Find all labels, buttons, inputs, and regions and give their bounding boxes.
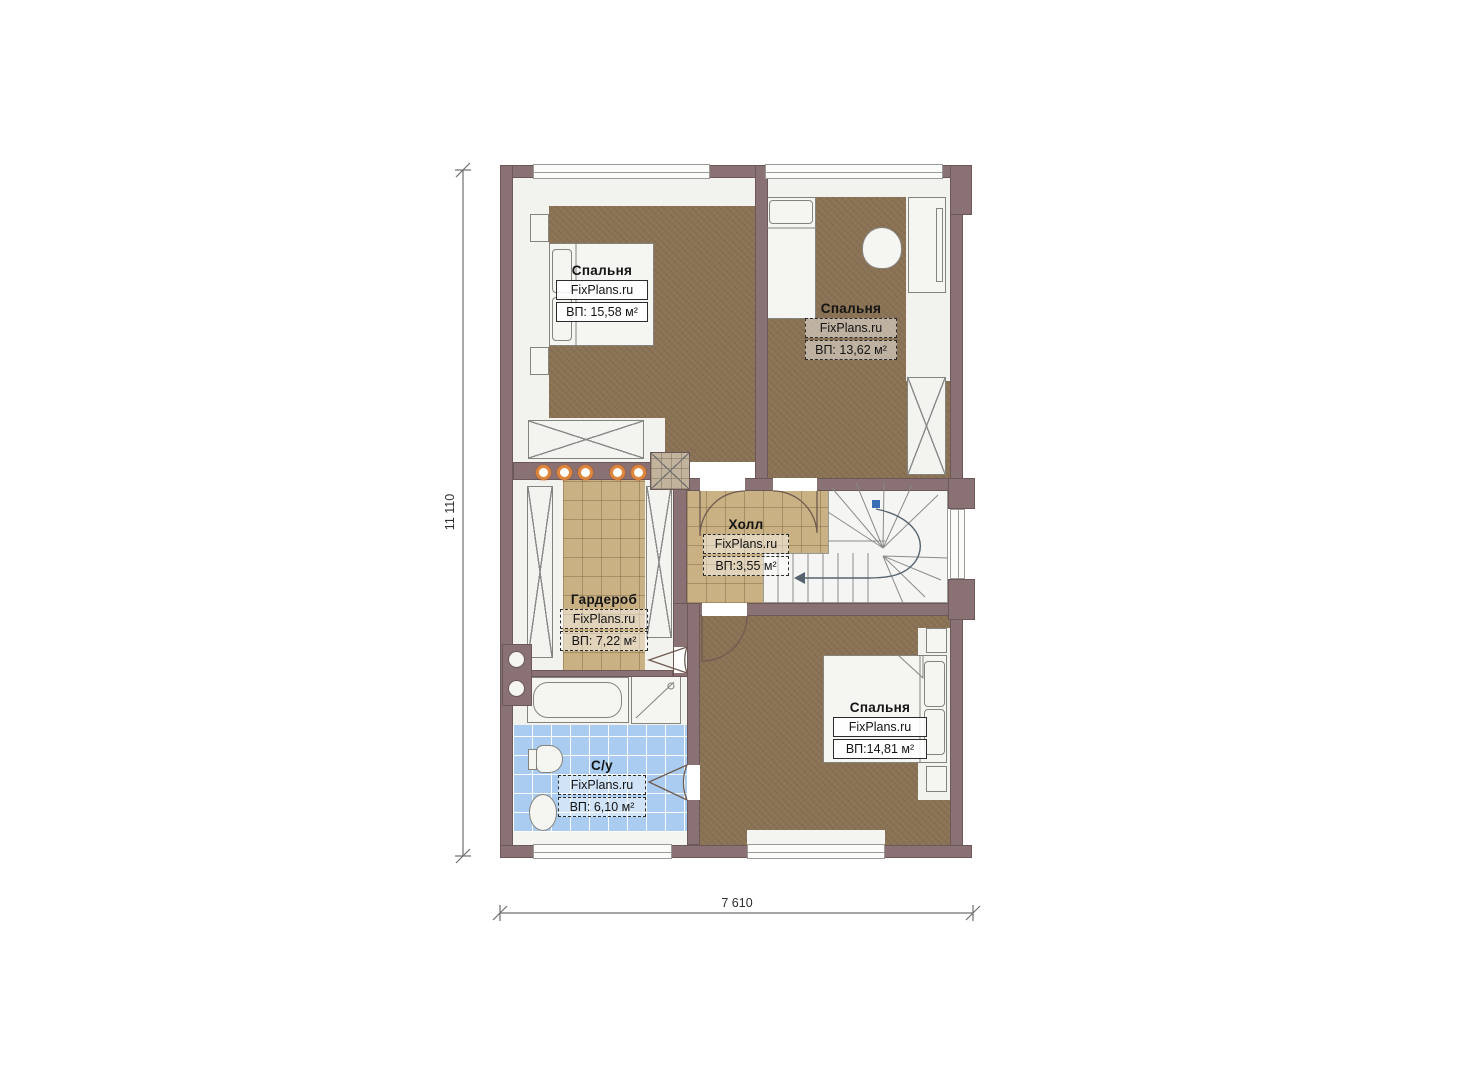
chair [862, 227, 902, 269]
pillow [924, 661, 945, 707]
wall-bathroom-bedroom [687, 603, 700, 845]
door-opening [702, 603, 747, 616]
floor-plan-canvas: Спальня FixPlans.ru ВП: 15,58 м² Спальня… [0, 0, 1474, 1080]
window-top-right [765, 164, 943, 179]
ceiling-light-icon [536, 465, 551, 480]
vent-icon [508, 680, 525, 697]
shower [631, 676, 681, 724]
ceiling-light-icon [557, 465, 572, 480]
nightstand [530, 214, 549, 242]
room-brand: FixPlans.ru [558, 775, 646, 795]
monitor [936, 208, 943, 282]
room-area: ВП: 13,62 м² [805, 340, 897, 360]
room-brand: FixPlans.ru [703, 534, 789, 554]
ventilation-shaft [650, 452, 690, 490]
room-name: Холл [703, 517, 789, 532]
room-name: Гардероб [560, 592, 648, 607]
room-label-wardrobe: Гардероб FixPlans.ru ВП: 7,22 м² [560, 592, 648, 651]
ceiling-light-icon [610, 465, 625, 480]
room-area: ВП: 15,58 м² [556, 302, 648, 322]
wall-outer-left [500, 165, 513, 858]
vent-icon [508, 651, 525, 668]
wall-wardrobe-bathroom [513, 670, 673, 677]
room-brand: FixPlans.ru [833, 717, 927, 737]
room-name: Спальня [805, 301, 897, 316]
door-opening [700, 478, 745, 491]
nightstand [530, 347, 549, 375]
wardrobe-cabinet [646, 486, 672, 638]
window-bottom-left [533, 844, 672, 859]
room-label-bedroom-1: Спальня FixPlans.ru ВП: 15,58 м² [556, 263, 648, 322]
dimension-height-label: 11 110 [443, 482, 457, 542]
pillow [769, 200, 813, 224]
room-label-bedroom-3: Спальня FixPlans.ru ВП:14,81 м² [833, 700, 927, 759]
wall-stair-right-b [948, 579, 975, 620]
room-area: ВП:14,81 м² [833, 739, 927, 759]
wall-stair-right-a [948, 478, 975, 509]
room-label-bedroom-2: Спальня FixPlans.ru ВП: 13,62 м² [805, 301, 897, 360]
sink [529, 794, 557, 831]
wardrobe-cabinet [527, 486, 553, 658]
window-sill-zone [747, 830, 885, 845]
ceiling-light-icon [578, 465, 593, 480]
room-name: С/у [558, 758, 646, 773]
window-sill-zone [768, 178, 950, 197]
wall-corner-top-right [950, 165, 972, 215]
wall-bedroom-divider [755, 165, 768, 491]
dimension-width-label: 7 610 [697, 896, 777, 910]
wardrobe-cabinet [528, 420, 644, 459]
room-label-bathroom: С/у FixPlans.ru ВП: 6,10 м² [558, 758, 646, 817]
room-brand: FixPlans.ru [560, 609, 648, 629]
nightstand [926, 766, 947, 792]
window-sill-zone [513, 178, 755, 206]
room-area: ВП: 7,22 м² [560, 631, 648, 651]
room-name: Спальня [833, 700, 927, 715]
room-area: ВП:3,55 м² [703, 556, 789, 576]
room-brand: FixPlans.ru [805, 318, 897, 338]
door-opening [687, 765, 700, 800]
room-brand: FixPlans.ru [556, 280, 648, 300]
room-name: Спальня [556, 263, 648, 278]
room-area: ВП: 6,10 м² [558, 797, 646, 817]
bathtub-basin [533, 682, 622, 718]
window-stairs [950, 509, 965, 579]
pillow [924, 709, 945, 755]
room-label-hall: Холл FixPlans.ru ВП:3,55 м² [703, 517, 789, 576]
door-opening [674, 647, 687, 673]
nightstand [926, 628, 947, 653]
stair-landing [828, 482, 948, 603]
door-opening [773, 478, 817, 491]
window-top-left [533, 164, 710, 179]
ceiling-light-icon [631, 465, 646, 480]
wardrobe-cabinet [907, 377, 946, 475]
window-bottom-right [747, 844, 885, 859]
